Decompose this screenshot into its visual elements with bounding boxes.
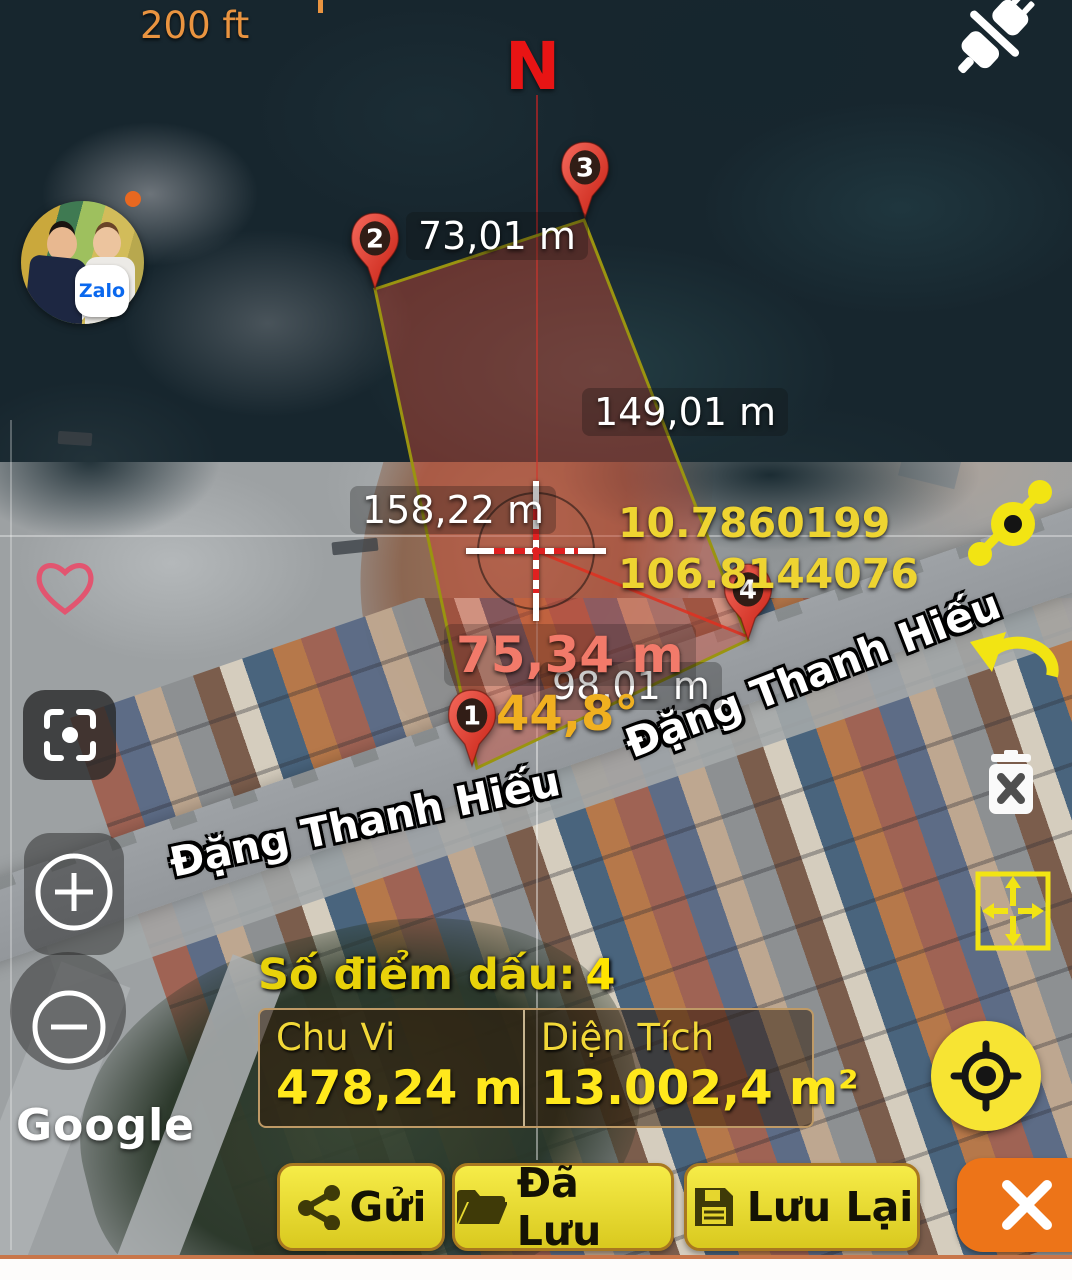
area-value: 13.002,4 m² xyxy=(541,1061,859,1116)
zalo-badge[interactable]: Zalo xyxy=(75,265,129,317)
center-focus-button[interactable] xyxy=(23,690,116,780)
points-count-line: Số điểm dấu:4 xyxy=(258,950,615,1000)
expand-bounds-icon[interactable] xyxy=(974,870,1052,952)
zoom-out-button[interactable] xyxy=(30,988,108,1066)
favorite-heart-icon[interactable] xyxy=(32,556,98,618)
send-label: Gửi xyxy=(350,1183,427,1231)
save-label: Lưu Lại xyxy=(747,1183,914,1231)
map-pin-2[interactable]: 2 xyxy=(348,211,402,291)
notification-dot xyxy=(125,191,141,207)
svg-text:1: 1 xyxy=(463,701,481,731)
edge-length-top: 73,01 m xyxy=(406,212,588,260)
edge-length-right: 149,01 m xyxy=(582,388,788,436)
truck xyxy=(58,431,93,446)
folder-icon xyxy=(455,1186,507,1228)
focus-icon xyxy=(42,707,98,763)
perimeter-cell: Chu Vi 478,24 m xyxy=(260,1010,523,1126)
angle-label: 44,8° xyxy=(484,684,650,744)
graticule-line xyxy=(10,420,12,1250)
svg-text:2: 2 xyxy=(366,224,384,254)
bottom-system-strip xyxy=(0,1255,1072,1280)
undo-arrow-icon[interactable] xyxy=(964,624,1060,688)
longitude-value: 106.8144076 xyxy=(618,549,919,600)
perimeter-label: Chu Vi xyxy=(276,1016,523,1059)
delete-trash-icon[interactable] xyxy=(986,750,1038,816)
zalo-label: Zalo xyxy=(79,280,125,302)
points-label: Số điểm dấu: xyxy=(258,950,576,1000)
my-location-button[interactable] xyxy=(931,1021,1041,1131)
north-indicator: N xyxy=(505,28,560,105)
points-count: 4 xyxy=(586,950,616,1000)
send-button[interactable]: Gửi xyxy=(277,1163,445,1251)
zoom-in-button[interactable] xyxy=(33,851,115,933)
svg-text:3: 3 xyxy=(576,153,594,183)
google-logo: Google xyxy=(16,1100,195,1151)
floppy-save-icon xyxy=(691,1184,737,1230)
close-icon xyxy=(993,1171,1061,1239)
waypoint-link-icon[interactable] xyxy=(956,456,1060,574)
map-pin-3[interactable]: 3 xyxy=(558,140,612,220)
metrics-panel: Chu Vi 478,24 m Diện Tích 13.002,4 m² xyxy=(258,1008,814,1128)
saved-button[interactable]: Đã Lưu xyxy=(452,1163,674,1251)
latitude-value: 10.7860199 xyxy=(618,498,919,549)
edge-length-left: 158,22 m xyxy=(350,486,556,534)
saved-label: Đã Lưu xyxy=(517,1159,671,1255)
map-measure-app: Đặng Thanh Hiếu Đặng Thanh Hiếu 1 2 3 xyxy=(0,0,1072,1280)
share-icon xyxy=(296,1184,340,1230)
plug-disconnect-icon[interactable] xyxy=(946,0,1056,102)
center-coordinates: 10.7860199 106.8144076 xyxy=(618,498,919,600)
perimeter-value: 478,24 m xyxy=(276,1061,523,1116)
center-distance-label: 75,34 m xyxy=(444,624,696,686)
target-icon xyxy=(947,1037,1025,1115)
scale-bar-label: 200 ft xyxy=(140,4,249,47)
save-button[interactable]: Lưu Lại xyxy=(684,1163,920,1251)
north-reference-line xyxy=(536,95,538,485)
avatar-photo-detail xyxy=(93,227,121,259)
area-label: Diện Tích xyxy=(541,1016,859,1059)
close-button[interactable] xyxy=(957,1158,1072,1252)
area-cell: Diện Tích 13.002,4 m² xyxy=(523,1010,859,1126)
scale-bar-tick xyxy=(318,0,323,13)
